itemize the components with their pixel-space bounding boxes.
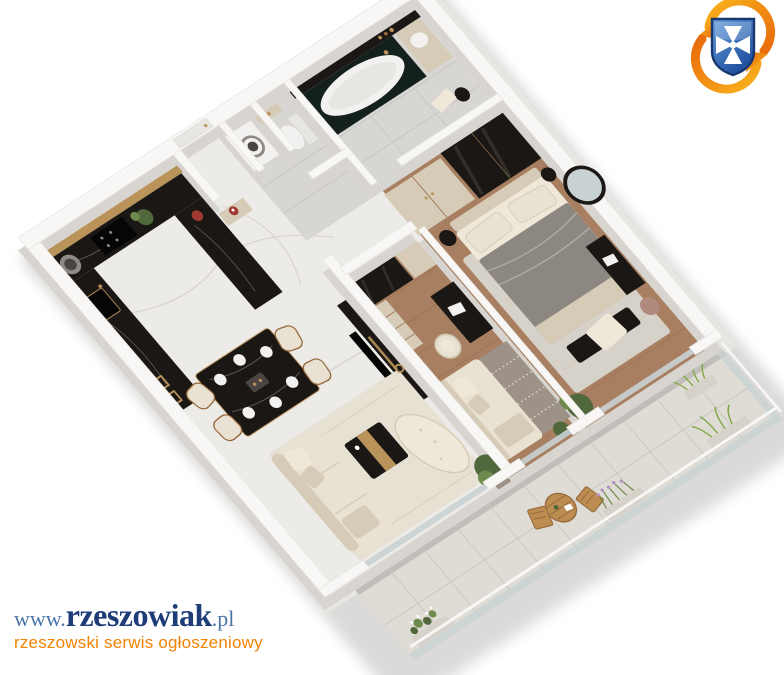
floorplan-3d-render (0, 0, 784, 675)
watermark-tagline: rzeszowski serwis ogłoszeniowy (14, 634, 263, 651)
watermark: www.rzeszowiak.pl rzeszowski serwis ogło… (14, 599, 263, 651)
real-estate-render: www.rzeszowiak.pl rzeszowski serwis ogło… (0, 0, 784, 675)
watermark-tld: .pl (212, 606, 235, 631)
logo-shield (712, 19, 754, 75)
watermark-name: rzeszowiak (66, 597, 212, 633)
rzeszowiak-logo (695, 1, 770, 89)
watermark-www: www. (14, 606, 66, 631)
watermark-url: www.rzeszowiak.pl (14, 599, 263, 631)
